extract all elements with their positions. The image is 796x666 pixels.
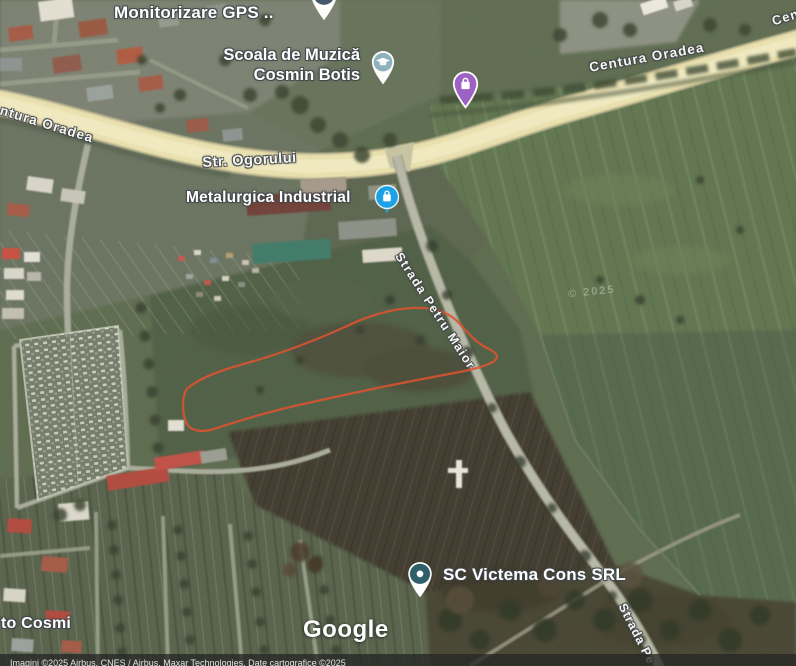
attribution-bar[interactable]: Imagini ©2025 Airbus, CNES / Airbus, Max…	[0, 654, 796, 666]
shopping-bag-icon	[373, 184, 401, 216]
label-to-cosmi[interactable]: to Cosmi	[1, 615, 71, 633]
shopping-bag-icon	[452, 71, 479, 109]
label-metalurgica-industrial[interactable]: Metalurgica Industrial	[186, 189, 351, 207]
school-pin[interactable]	[370, 50, 396, 86]
label-scoala-line1: Scoala de Muzică	[190, 45, 360, 65]
google-logo[interactable]: Google	[303, 616, 389, 644]
metalurgica-pin[interactable]	[373, 184, 401, 216]
label-sc-victema[interactable]: SC Victema Cons SRL	[443, 565, 626, 585]
dot-icon	[406, 561, 434, 599]
image-grain	[0, 0, 796, 666]
victema-pin[interactable]	[406, 561, 434, 599]
dot-icon	[309, 0, 339, 22]
graduation-cap-icon	[370, 50, 396, 86]
poi-pin-top[interactable]	[309, 0, 339, 22]
label-scoala-line2: Cosmin Botis	[190, 65, 360, 85]
map-viewport[interactable]: Monitorizare GPS .. Scoala de Muzică Cos…	[0, 0, 796, 666]
attribution-text: Imagini ©2025 Airbus, CNES / Airbus, Max…	[10, 658, 796, 666]
label-scoala-de-muzica[interactable]: Scoala de Muzică Cosmin Botis	[190, 45, 360, 85]
shopping-pin[interactable]	[452, 71, 479, 109]
satellite-imagery	[0, 0, 796, 666]
label-monitorizare-gps[interactable]: Monitorizare GPS ..	[114, 3, 274, 23]
